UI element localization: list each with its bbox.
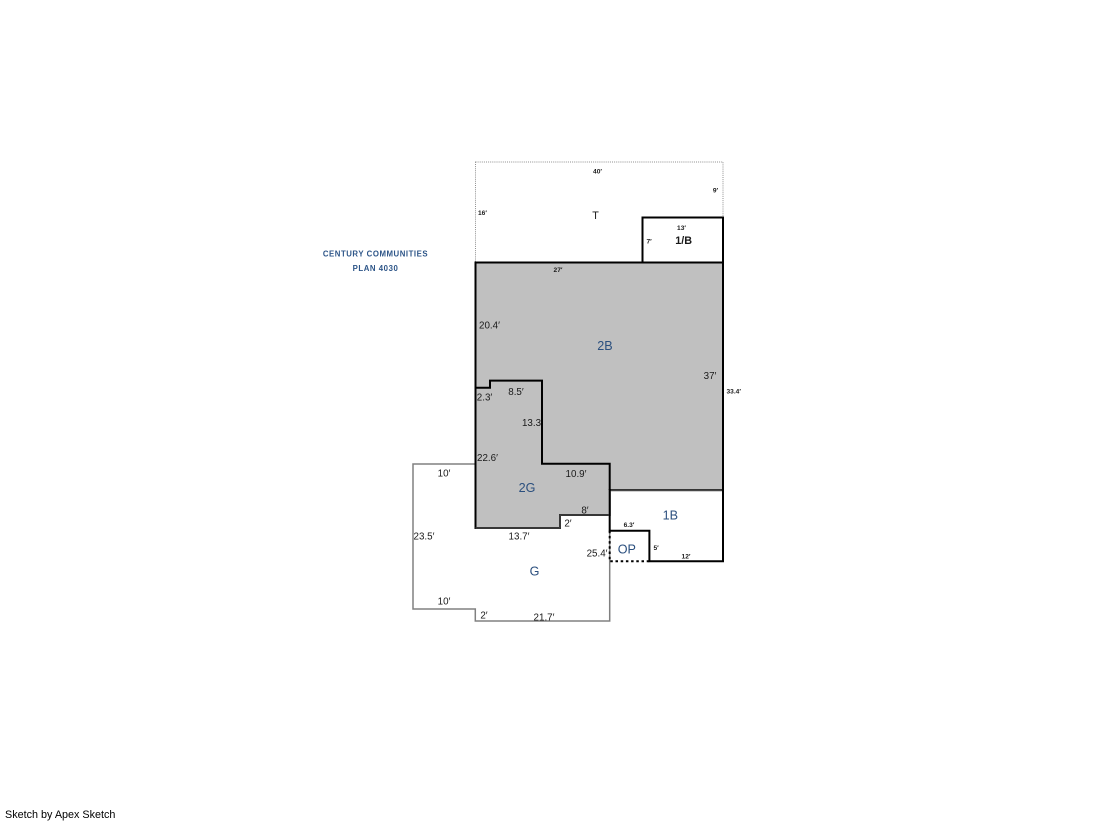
svg-text:12′: 12′	[682, 553, 691, 560]
svg-text:10′: 10′	[438, 597, 451, 608]
svg-text:40′: 40′	[593, 169, 602, 176]
svg-text:37′: 37′	[704, 371, 717, 382]
svg-text:13.7′: 13.7′	[509, 532, 530, 543]
svg-text:2′: 2′	[564, 519, 571, 530]
svg-text:10.9′: 10.9′	[566, 469, 587, 480]
svg-text:2.3′: 2.3′	[477, 393, 493, 404]
svg-text:8′: 8′	[581, 505, 588, 516]
svg-text:2B: 2B	[597, 339, 612, 353]
svg-text:8.5′: 8.5′	[508, 387, 524, 398]
svg-text:T: T	[592, 210, 599, 222]
svg-text:1B: 1B	[663, 508, 678, 522]
svg-text:PLAN 4030: PLAN 4030	[353, 264, 399, 273]
svg-text:13′: 13′	[677, 225, 686, 232]
svg-text:10′: 10′	[438, 469, 451, 480]
svg-text:21.7′: 21.7′	[534, 613, 555, 624]
svg-text:9′: 9′	[713, 188, 719, 195]
svg-text:20.4′: 20.4′	[479, 321, 500, 332]
svg-text:23.5′: 23.5′	[414, 532, 435, 543]
svg-text:7′: 7′	[647, 239, 653, 246]
svg-text:25.4′: 25.4′	[587, 549, 608, 560]
svg-text:2′: 2′	[480, 611, 487, 622]
svg-text:G: G	[530, 564, 540, 578]
svg-text:Sketch by Apex Sketch: Sketch by Apex Sketch	[5, 809, 115, 821]
svg-text:5′: 5′	[654, 545, 660, 552]
svg-text:6.3′: 6.3′	[624, 522, 635, 529]
svg-text:OP: OP	[618, 542, 636, 556]
svg-text:33.4′: 33.4′	[727, 388, 742, 395]
svg-text:1/B: 1/B	[675, 235, 692, 247]
svg-text:27′: 27′	[554, 267, 563, 274]
svg-text:13.3: 13.3	[522, 418, 542, 429]
svg-text:CENTURY COMMUNITIES: CENTURY COMMUNITIES	[323, 249, 428, 258]
svg-text:2G: 2G	[519, 481, 536, 495]
svg-text:22.6′: 22.6′	[477, 453, 498, 464]
svg-text:16′: 16′	[478, 210, 487, 217]
